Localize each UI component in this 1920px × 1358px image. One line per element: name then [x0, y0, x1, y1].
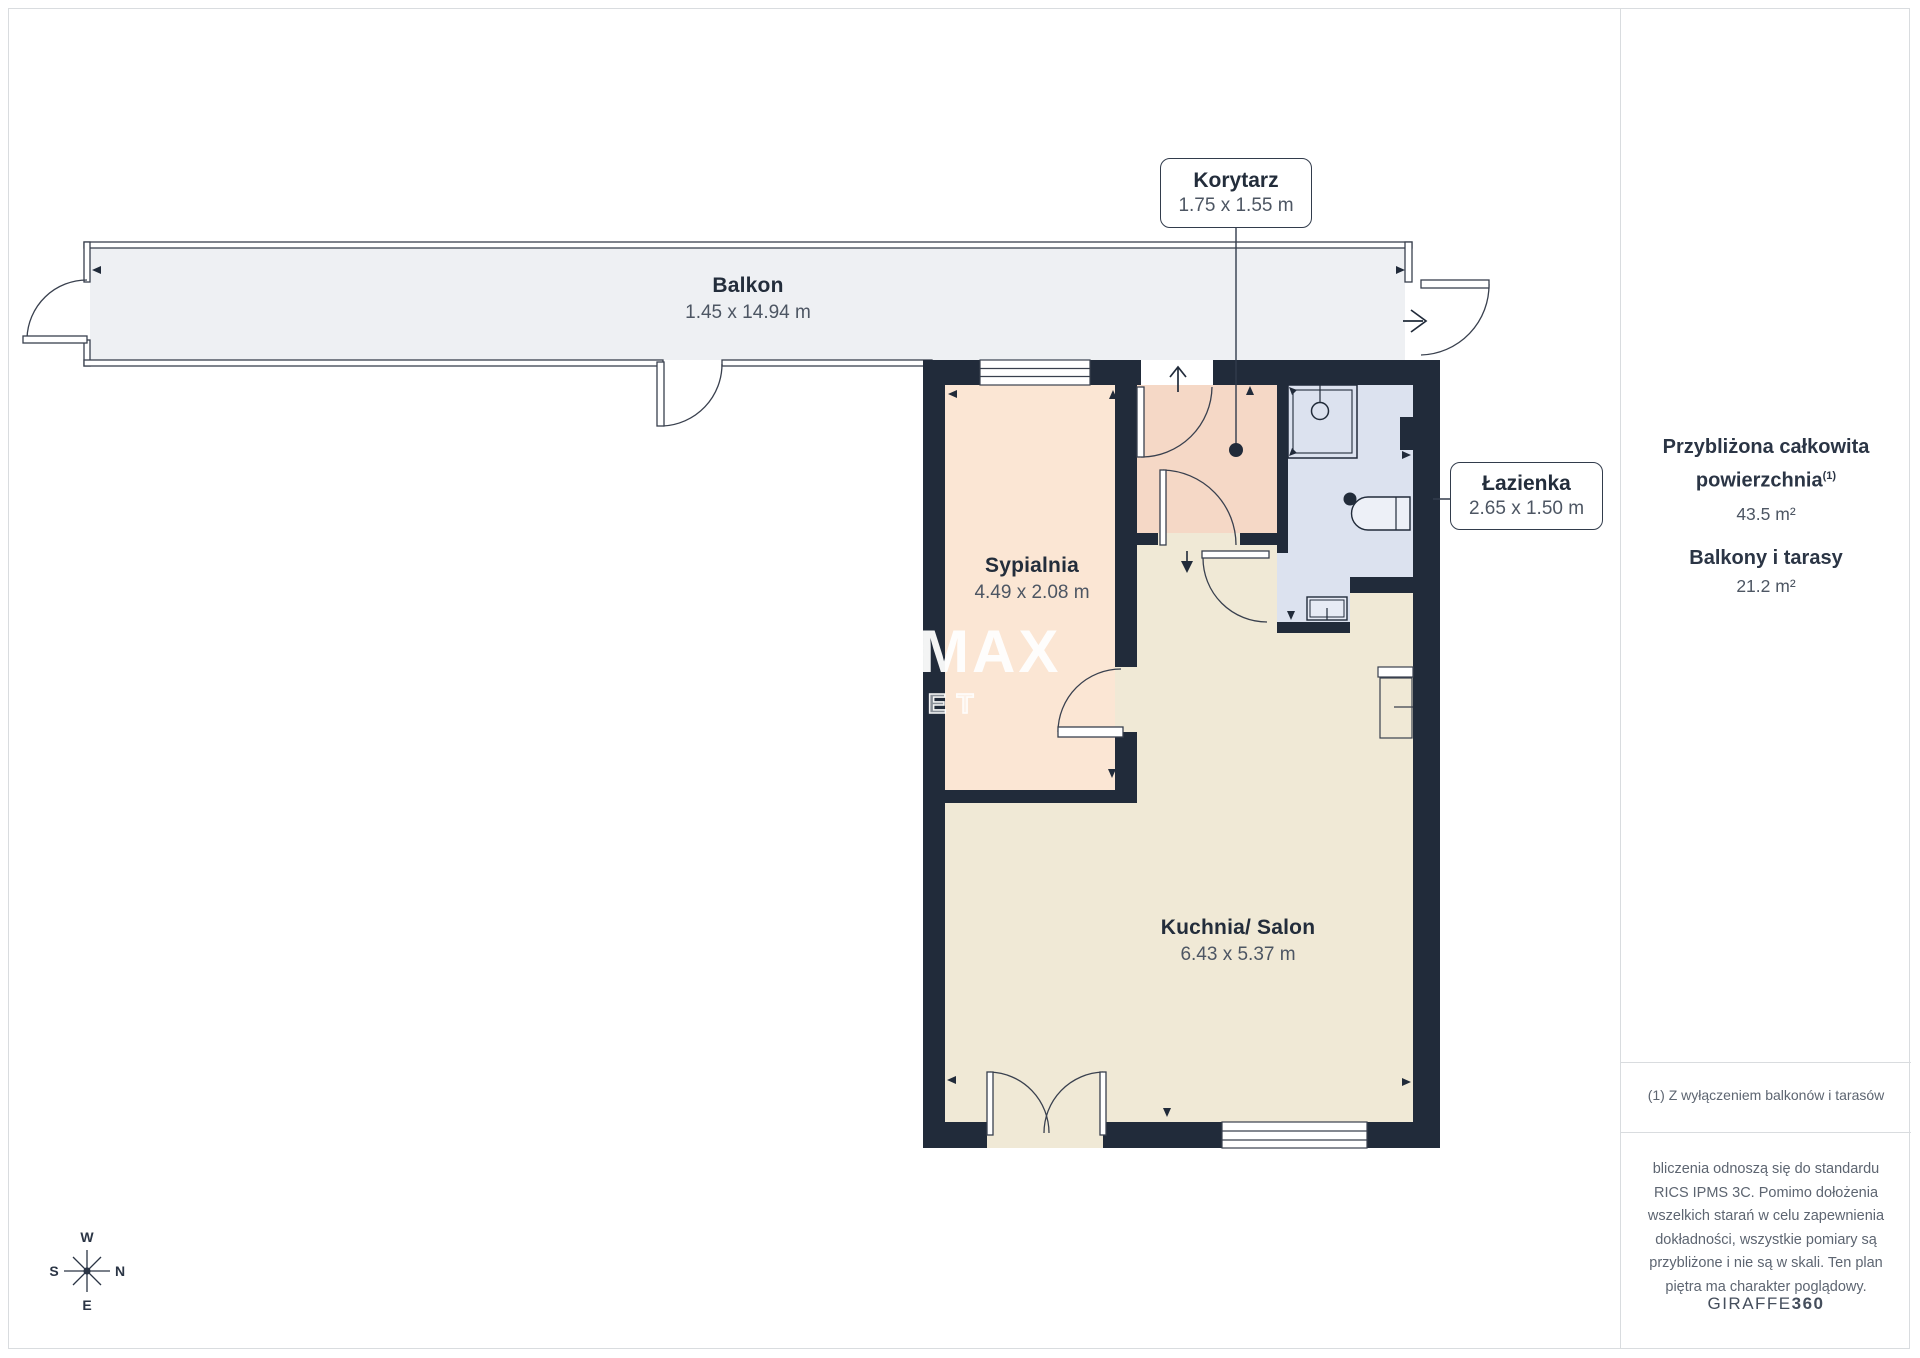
sidebar-divider: [1620, 8, 1621, 1349]
disclaimer-line: przybliżone i nie są w skali. Ten plan: [1621, 1252, 1911, 1276]
disclaimer: bliczenia odnoszą się do standardu RICS …: [1621, 1158, 1911, 1299]
balcony-label: Balkon 1.45 x 14.94 m: [685, 274, 811, 324]
kitchen-name: Kuchnia/ Salon: [1161, 916, 1316, 940]
bedroom-label: Sypialnia 4.49 x 2.08 m: [974, 554, 1089, 604]
corridor-name: Korytarz: [1193, 169, 1278, 193]
disclaimer-line: dokładności, wszystkie pomiary są: [1621, 1229, 1911, 1253]
bathroom-floor: [1288, 385, 1413, 577]
compass-east: E: [82, 1297, 91, 1313]
disclaimer-line: wszelkich starań w celu zapewnienia: [1621, 1205, 1911, 1229]
footnote: (1) Z wyłączeniem balkonów i tarasów: [1621, 1087, 1911, 1103]
giraffe360-name: GIRAFFE: [1707, 1294, 1791, 1313]
compass-north: N: [115, 1263, 125, 1279]
corridor-entry-opening: [1141, 360, 1213, 385]
corridor-callout: Korytarz 1.75 x 1.55 m: [1160, 158, 1312, 228]
entrance-exterior-door: [1421, 280, 1489, 355]
wall-cabinet-icon: [1378, 667, 1413, 738]
kitchen-window: [1222, 1122, 1367, 1148]
disclaimer-line: bliczenia odnoszą się do standardu: [1621, 1158, 1911, 1182]
balcony-dimensions: 1.45 x 14.94 m: [685, 302, 811, 324]
bathroom-callout: Łazienka 2.65 x 1.50 m: [1450, 462, 1603, 530]
disclaimer-line: RICS IPMS 3C. Pomimo dołożenia: [1621, 1182, 1911, 1206]
giraffe360-logo: GIRAFFE360: [1621, 1294, 1911, 1314]
kitchen-label: Kuchnia/ Salon 6.43 x 5.37 m: [1161, 916, 1316, 966]
corridor-floor: [1137, 385, 1277, 533]
giraffe360-suffix: 360: [1792, 1294, 1825, 1313]
corridor-dimensions: 1.75 x 1.55 m: [1178, 195, 1293, 217]
balcony-left-door: [23, 280, 87, 343]
total-area-footnote-marker: (1): [1823, 470, 1836, 482]
balconies-value: 21.2 m²: [1621, 576, 1911, 597]
total-area-title-line1: Przybliżona całkowita: [1663, 436, 1870, 458]
compass-rose-icon: [64, 1250, 110, 1292]
floor-plan-canvas: [0, 0, 1920, 1358]
kitchen-dimensions: 6.43 x 5.37 m: [1161, 944, 1316, 966]
bedroom-dimensions: 4.49 x 2.08 m: [974, 582, 1089, 604]
balcony-bottom-door: [657, 362, 722, 426]
sidebar-divider-bottom: [1621, 1132, 1911, 1133]
bedroom-window: [980, 360, 1090, 385]
compass-south: S: [49, 1263, 58, 1279]
bedroom-name: Sypialnia: [974, 554, 1089, 578]
floorplan-page: Balkon 1.45 x 14.94 m Sypialnia 4.49 x 2…: [0, 0, 1920, 1358]
total-area-value: 43.5 m²: [1621, 504, 1911, 525]
entry-arrow-icon: [1403, 310, 1426, 332]
balcony-name: Balkon: [685, 274, 811, 298]
total-area-title: Przybliżona całkowita powierzchnia(1): [1621, 433, 1911, 496]
sidebar-divider-top: [1621, 1062, 1911, 1063]
toilet-icon: [1307, 597, 1347, 620]
total-area-title-line2: powierzchnia: [1696, 470, 1823, 492]
compass-west: W: [80, 1229, 93, 1245]
bathroom-name: Łazienka: [1482, 472, 1571, 496]
bathroom-dimensions: 2.65 x 1.50 m: [1469, 498, 1584, 520]
balconies-title: Balkony i tarasy: [1621, 544, 1911, 573]
